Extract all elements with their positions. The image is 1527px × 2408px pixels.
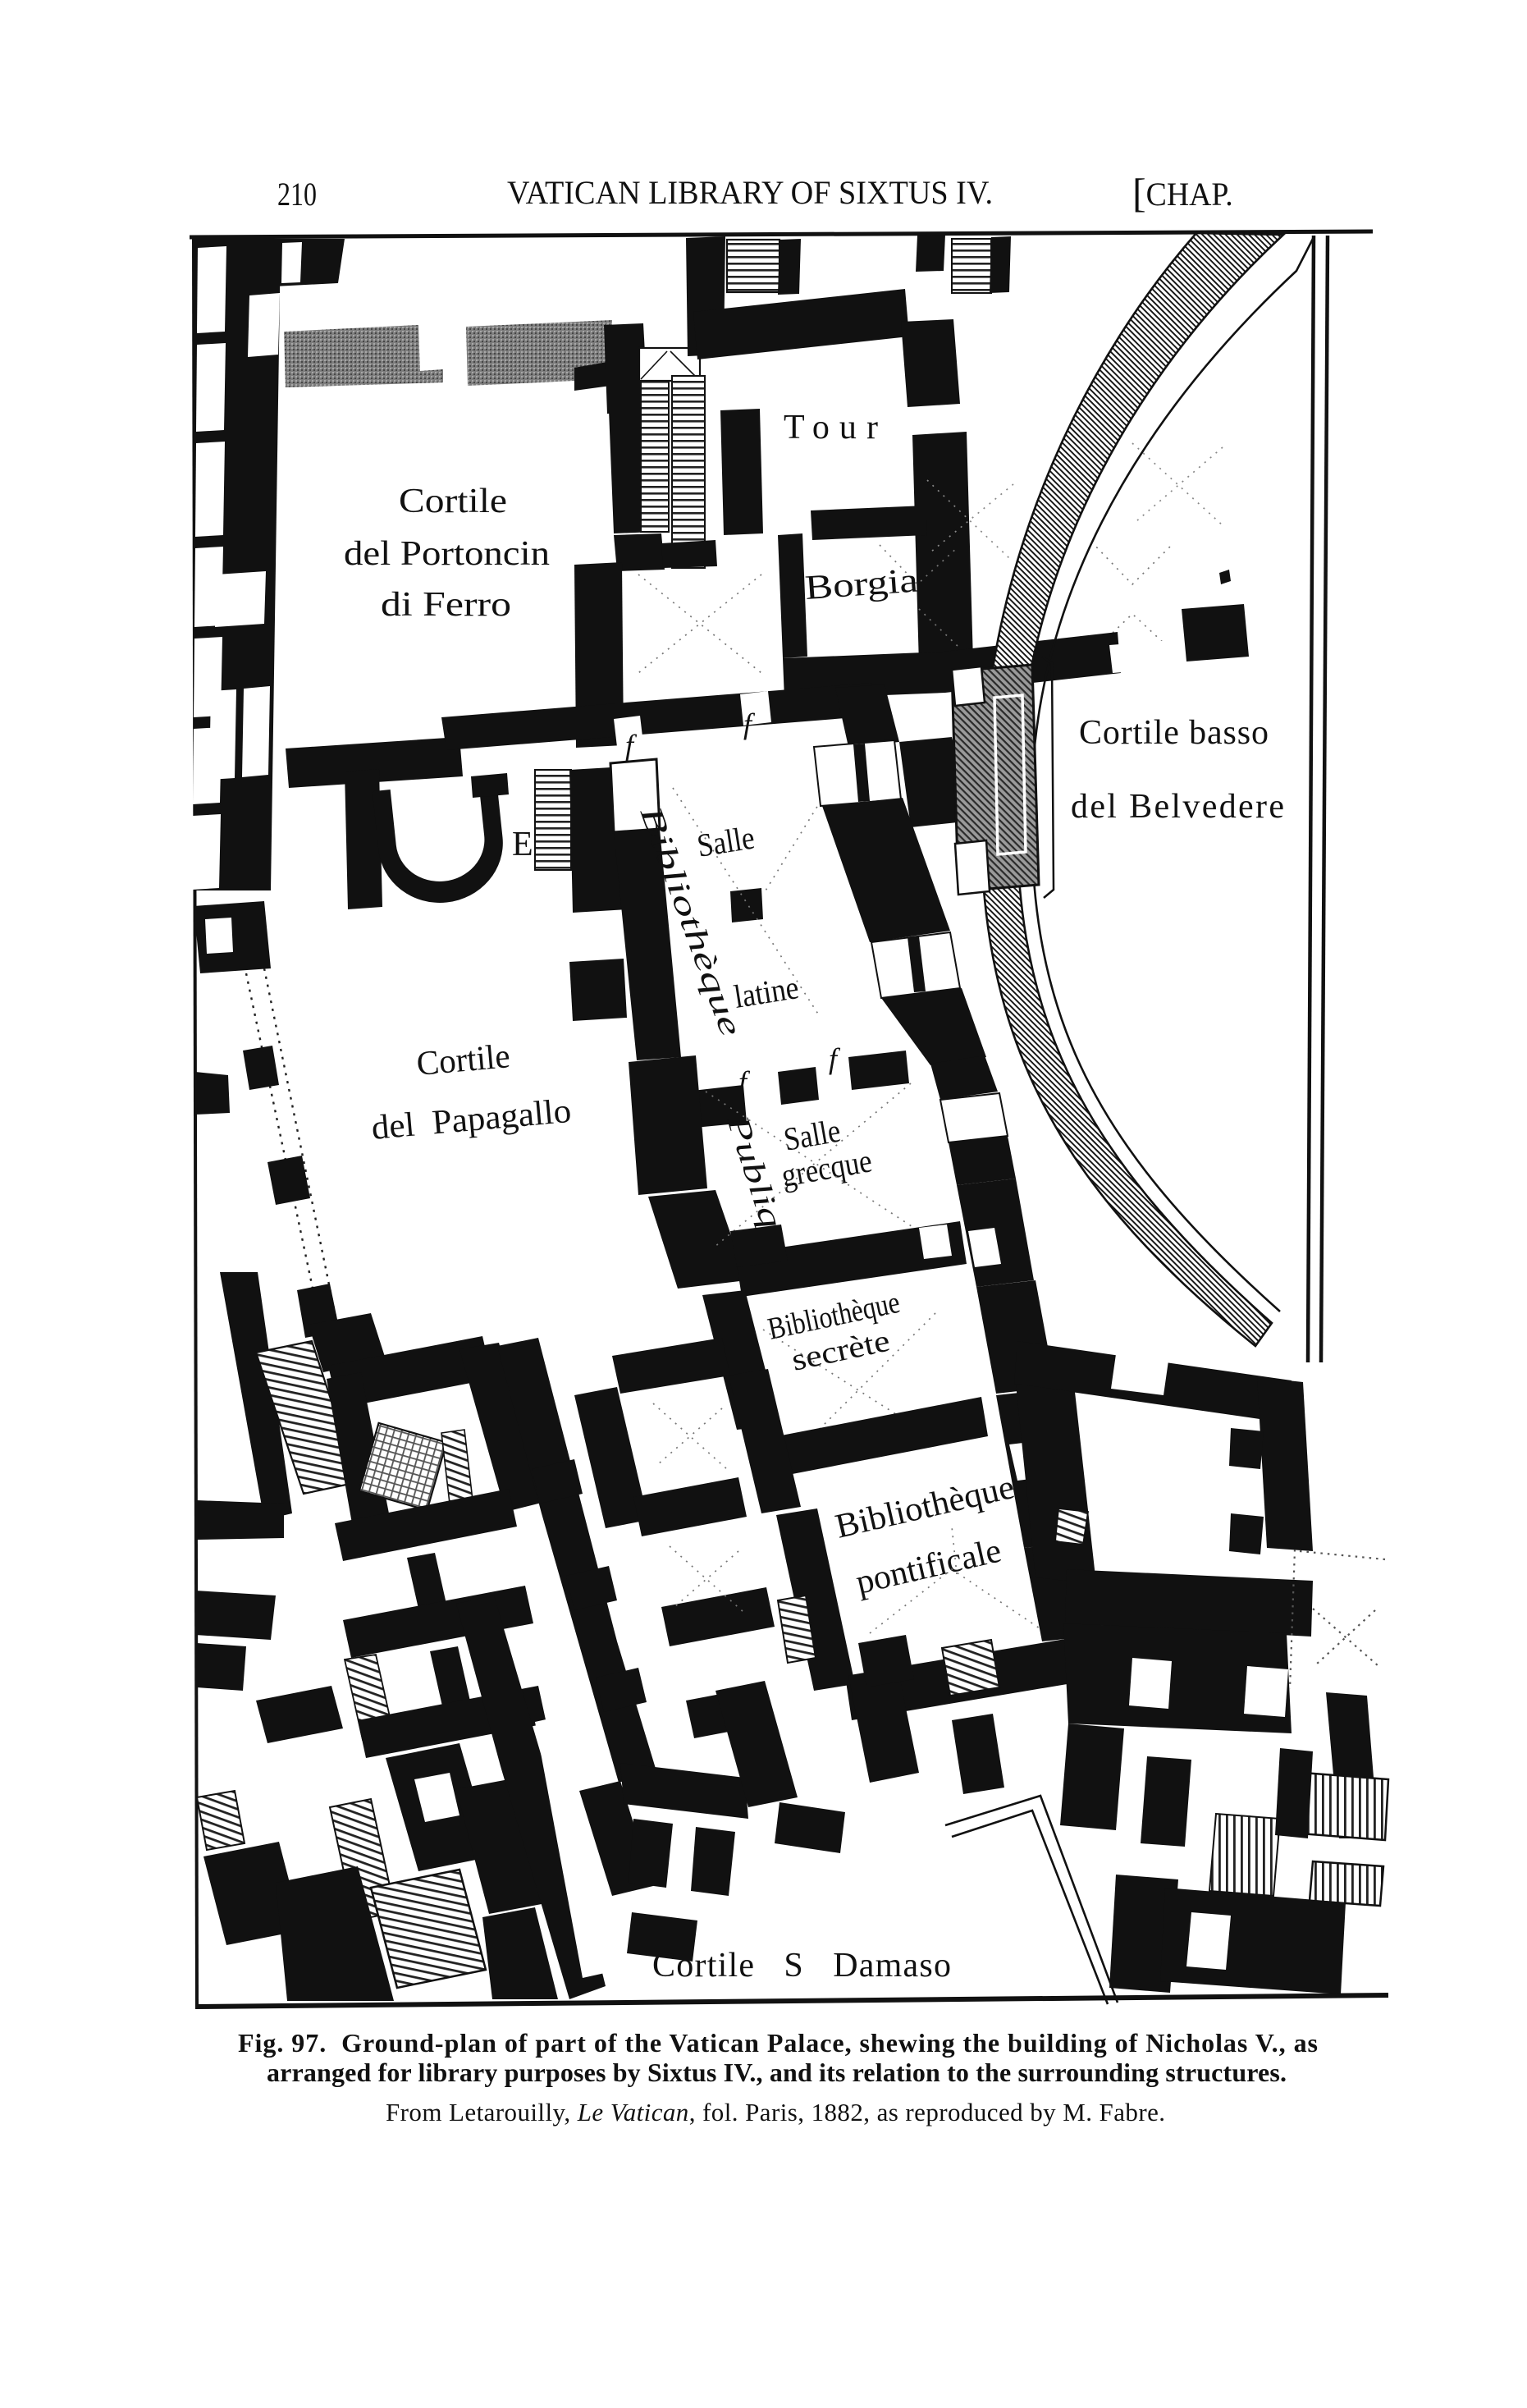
svg-text:del Portoncin: del Portoncin xyxy=(344,535,550,573)
svg-text:E: E xyxy=(512,826,533,863)
svg-text:210: 210 xyxy=(277,176,317,213)
svg-text:Fig. 97. Ground-plan of part: Fig. 97. Ground-plan of part of the Vati… xyxy=(238,2028,1318,2058)
svg-text:arranged for library purposes: arranged for library purposes by Sixtus … xyxy=(267,2058,1287,2087)
svg-text:Cortile basso: Cortile basso xyxy=(1079,714,1269,752)
svg-text:VATICAN LIBRARY OF SIXTUS IV.: VATICAN LIBRARY OF SIXTUS IV. xyxy=(507,174,993,211)
svg-text:di Ferro: di Ferro xyxy=(381,586,511,624)
svg-text:[CHAP.: [CHAP. xyxy=(1132,170,1233,216)
svg-text:Cortile: Cortile xyxy=(399,483,507,520)
svg-text:From Letarouilly, Le Vatican,: From Letarouilly, Le Vatican, fol. Paris… xyxy=(386,2098,1165,2126)
svg-text:del Belvedere: del Belvedere xyxy=(1071,788,1284,826)
svg-text:Borgia: Borgia xyxy=(803,561,919,607)
svg-text:Cortile S Damaso: Cortile S Damaso xyxy=(652,1947,951,1985)
